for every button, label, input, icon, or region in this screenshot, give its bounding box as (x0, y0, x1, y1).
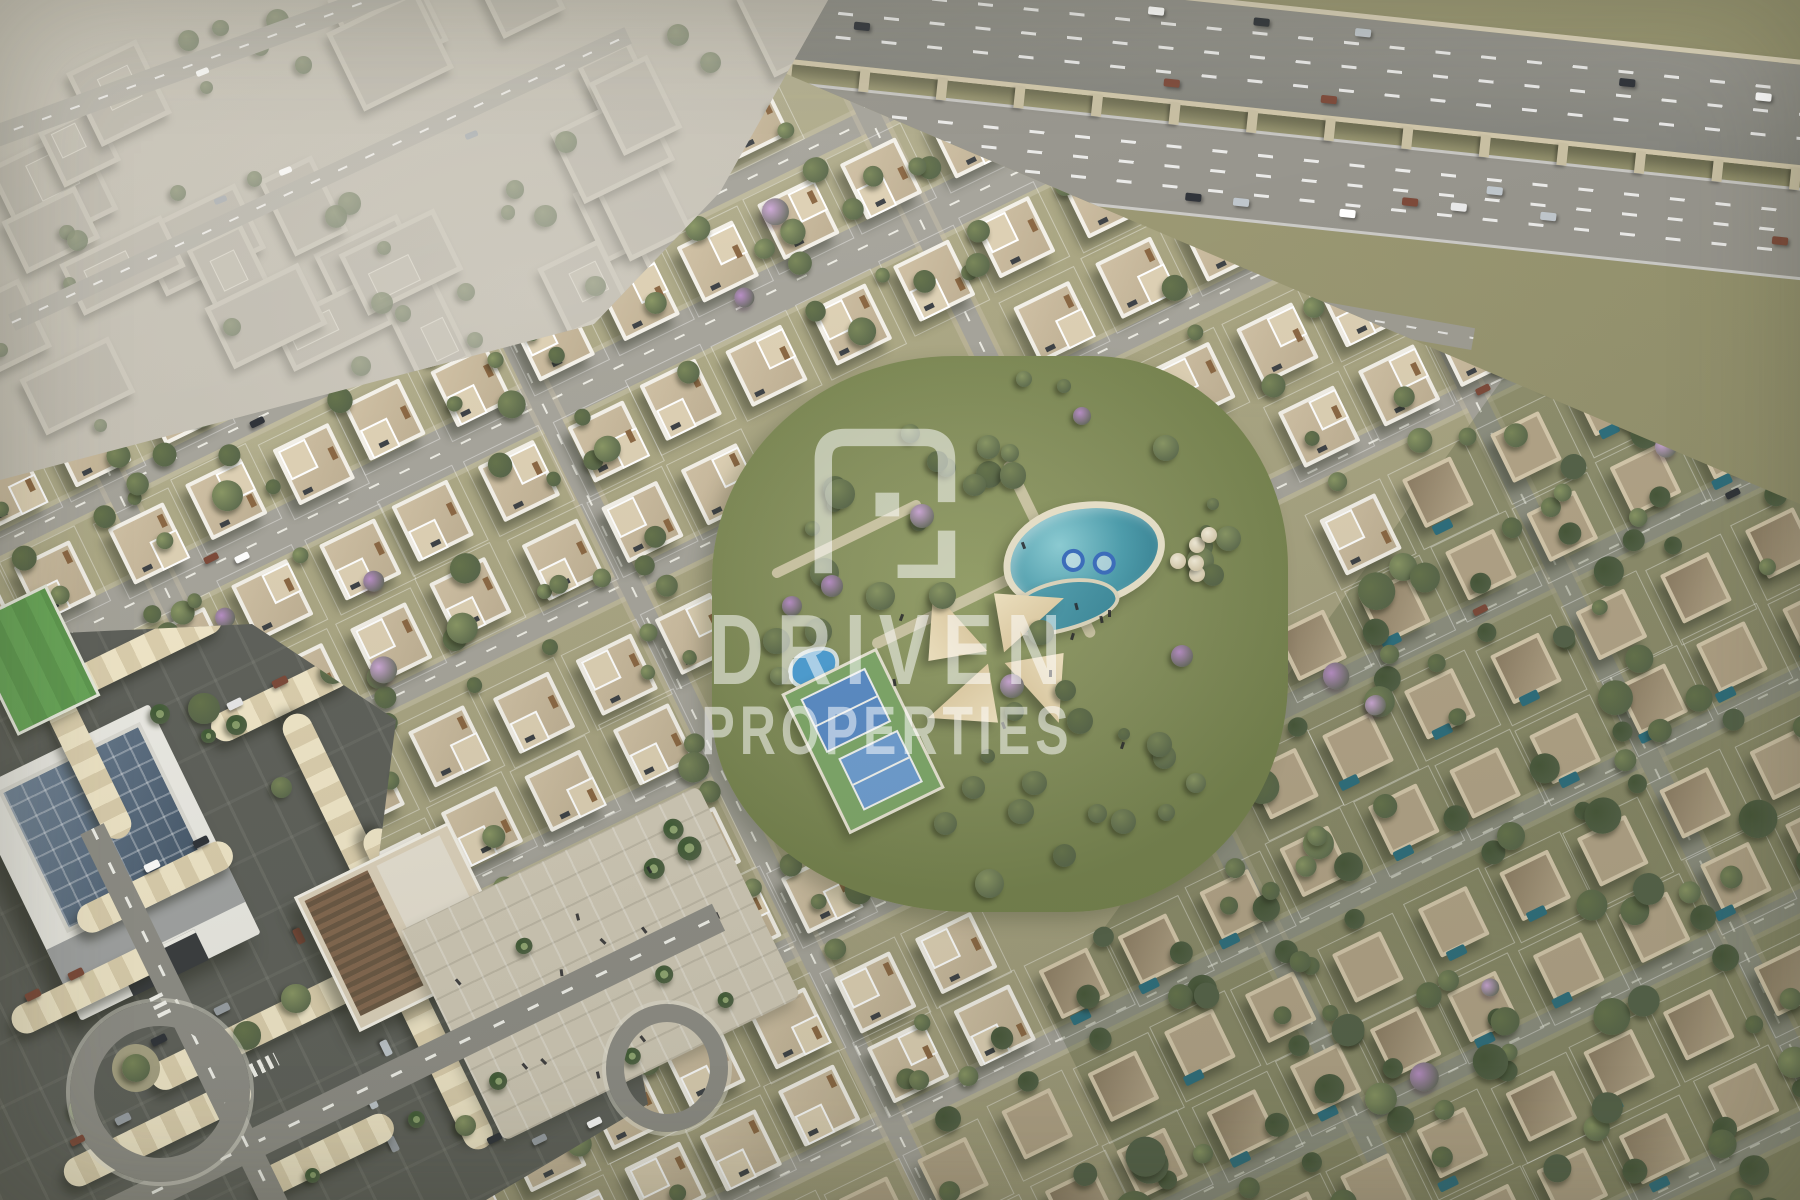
watermark-brand-subtitle: PROPERTIES (696, 696, 1074, 765)
driven-properties-logo-icon (805, 420, 965, 578)
watermark-brand-name: DRIVEN (696, 606, 1074, 696)
car (69, 1134, 86, 1147)
car (486, 1132, 503, 1145)
roundabout (70, 1002, 250, 1182)
crosswalk (248, 1053, 279, 1078)
dropoff-loop (606, 1004, 728, 1132)
tree (122, 1054, 150, 1082)
aerial-community-render: DRIVEN PROPERTIES (0, 0, 1800, 1200)
car (586, 1116, 603, 1129)
car (531, 1134, 548, 1147)
watermark: DRIVEN PROPERTIES (696, 420, 1074, 746)
